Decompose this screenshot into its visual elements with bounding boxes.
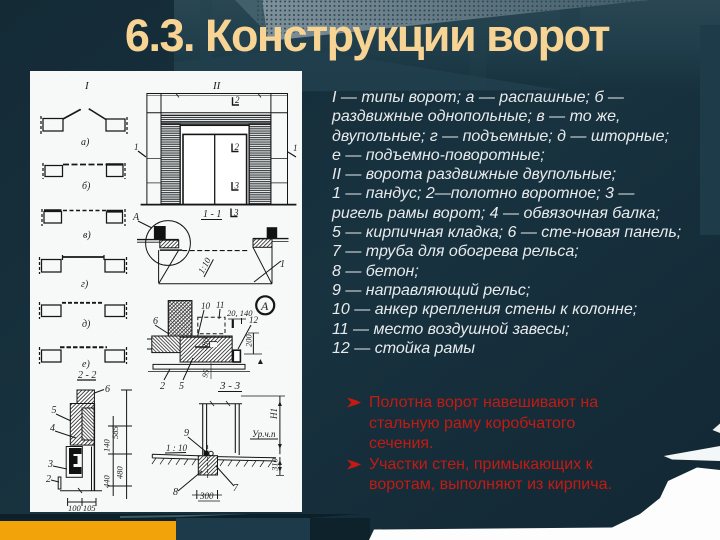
svg-text:A: A [260,299,269,313]
svg-text:10: 10 [201,301,211,311]
svg-text:3: 3 [234,181,240,191]
svg-text:2: 2 [235,142,240,152]
svg-text:200: 200 [244,334,254,348]
svg-text:2 - 2: 2 - 2 [78,370,96,381]
svg-text:2: 2 [235,95,240,105]
svg-text:1: 1 [134,142,139,152]
svg-text:6: 6 [105,384,110,395]
svg-text:е): е) [82,359,90,370]
svg-text:11: 11 [216,300,224,310]
svg-text:II: II [212,80,222,92]
svg-text:3: 3 [233,208,239,218]
svg-text:г): г) [81,279,89,290]
svg-text:д): д) [82,319,91,330]
svg-text:5: 5 [179,381,184,392]
svg-text:в): в) [83,230,91,241]
svg-text:б): б) [82,181,91,192]
svg-text:12: 12 [249,315,259,325]
svg-text:2: 2 [160,381,165,392]
svg-text:а): а) [81,137,90,148]
svg-text:1: 1 [293,143,298,153]
svg-text:1: 1 [280,259,285,270]
svg-text:1 - 1: 1 - 1 [203,209,221,220]
svg-text:3 - 3: 3 - 3 [219,380,241,392]
